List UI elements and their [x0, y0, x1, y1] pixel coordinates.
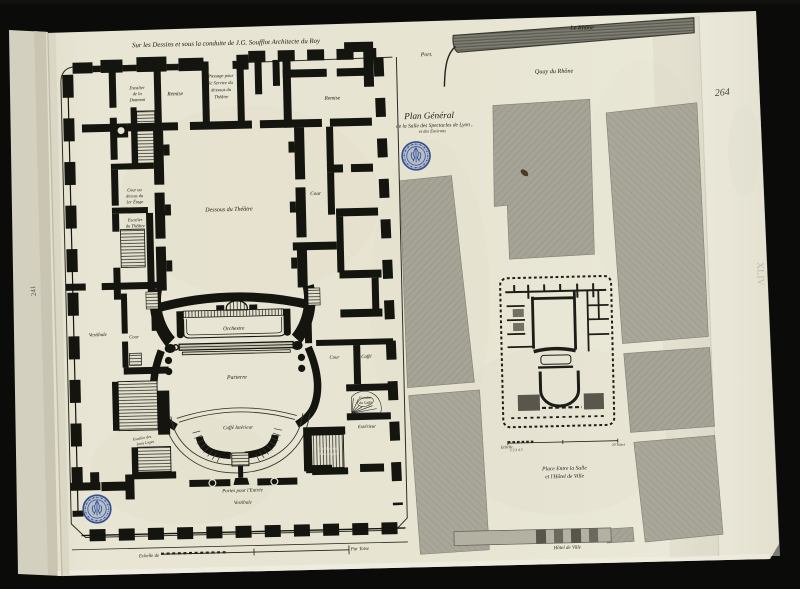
svg-text:dessous du: dessous du [211, 87, 232, 92]
svg-text:Théâtre: Théâtre [214, 94, 228, 99]
svg-text:et l'Hôtel de Ville: et l'Hôtel de Ville [545, 473, 584, 480]
svg-text:Parterre: Parterre [226, 375, 247, 381]
svg-text:et des Environs: et des Environs [419, 128, 446, 134]
svg-text:Caffé Intérieur: Caffé Intérieur [223, 426, 253, 432]
svg-text:Orchestre: Orchestre [223, 326, 245, 333]
svg-text:Le Rhône: Le Rhône [569, 24, 594, 32]
svg-text:264: 264 [714, 87, 730, 99]
svg-text:Escalier des: Escalier des [317, 447, 337, 451]
svg-text:Escalier: Escalier [128, 85, 145, 90]
svg-text:Port.: Port. [420, 52, 433, 58]
svg-text:du Théâtre: du Théâtre [126, 223, 145, 228]
svg-text:dessus du: dessus du [126, 193, 144, 198]
svg-text:Escalier: Escalier [127, 217, 143, 222]
svg-text:XLIV: XLIV [754, 262, 766, 287]
svg-text:Passage pour: Passage pour [207, 73, 233, 79]
svg-text:Dessous du Théâtre: Dessous du Théâtre [204, 206, 253, 213]
svg-text:Place Entre la Salle: Place Entre la Salle [541, 465, 587, 472]
svg-text:Extérieur: Extérieur [357, 425, 376, 430]
svg-text:Escalier: Escalier [358, 396, 372, 400]
svg-text:Vestibule: Vestibule [234, 501, 253, 506]
svg-text:Cour au: Cour au [127, 187, 142, 192]
svg-text:Dunmon: Dunmon [128, 97, 146, 102]
svg-text:Remise: Remise [166, 91, 183, 97]
svg-text:Par Toise: Par Toise [350, 547, 370, 552]
svg-text:Caffé: Caffé [361, 355, 372, 360]
svg-text:Cour: Cour [310, 191, 322, 197]
svg-text:Cour: Cour [329, 355, 339, 360]
svg-text:Portes pour l'Entrée: Portes pour l'Entrée [221, 488, 264, 494]
svg-text:241: 241 [29, 285, 38, 297]
svg-text:20 Toises: 20 Toises [612, 442, 626, 446]
svg-text:le Service du: le Service du [209, 80, 234, 86]
svg-text:2mes Loges: 2mes Loges [319, 452, 337, 456]
svg-text:de la: de la [133, 91, 143, 96]
svg-text:Remise: Remise [323, 95, 340, 101]
svg-text:Vestibule: Vestibule [89, 333, 108, 338]
svg-text:1 2 3 4 5: 1 2 3 4 5 [510, 448, 523, 452]
svg-text:Plan Général: Plan Général [403, 110, 454, 121]
svg-text:Cour: Cour [129, 334, 139, 339]
svg-text:Quay du Rhône: Quay du Rhône [535, 68, 574, 76]
svg-text:Echelle de: Echelle de [138, 554, 160, 560]
svg-text:Hôtel de Ville: Hôtel de Ville [553, 546, 582, 552]
svg-text:1er Étage: 1er Étage [126, 199, 143, 204]
svg-text:du Caffé: du Caffé [359, 401, 372, 405]
